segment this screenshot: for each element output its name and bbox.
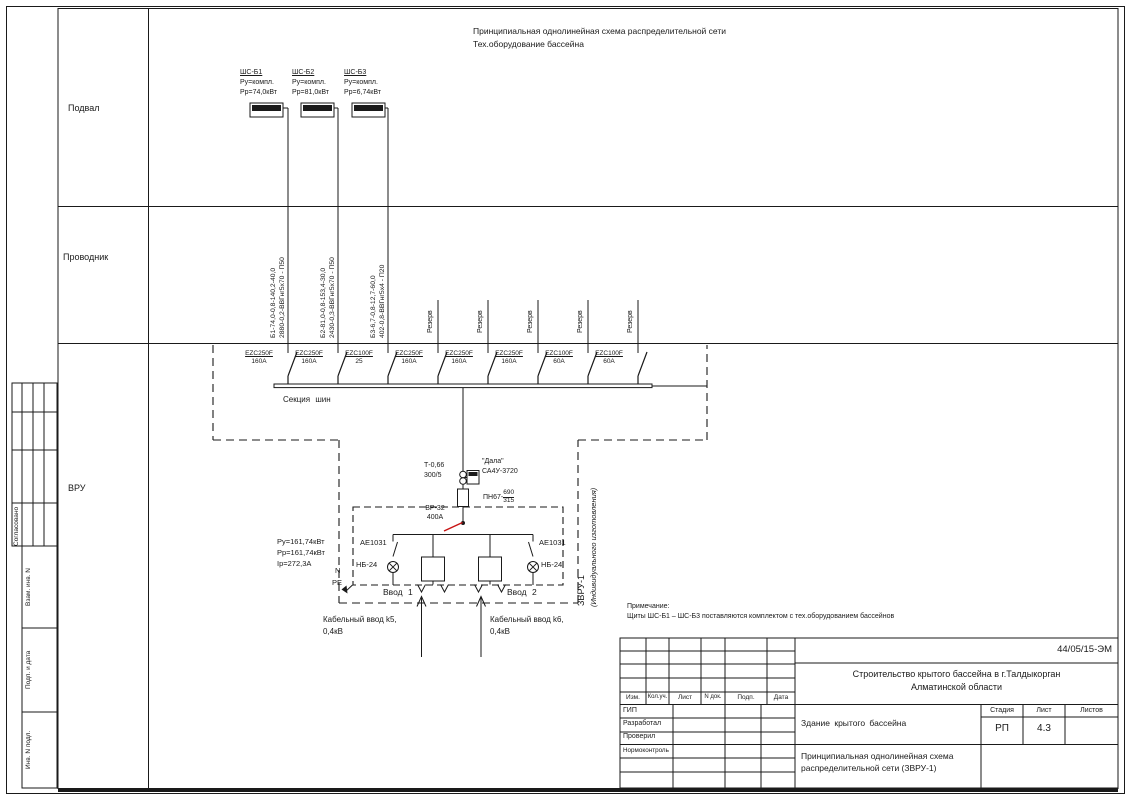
project-name: Строительство крытого бассейна в г.Талды… xyxy=(795,668,1118,694)
cable-label-3a: Б3-6,7-0,8-12,7-60,0 xyxy=(370,220,377,338)
stage-header: Стадия xyxy=(981,707,1023,715)
stage-value: РП xyxy=(981,723,1023,735)
breaker-rating: 160A xyxy=(451,358,466,365)
breaker-rating: 160A xyxy=(401,358,416,365)
breaker-model: EZC250F xyxy=(395,350,423,357)
doc-title-line1: Принципиальная однолинейная схема xyxy=(801,751,953,761)
cable-entry2-voltage: 0,4кВ xyxy=(490,627,510,636)
breaker-model: EZC250F xyxy=(495,350,523,357)
breaker-model: EZC100F xyxy=(595,350,623,357)
n-label: N xyxy=(335,567,340,576)
cable-entry1-label: Кабельный ввод k5, 0,4кВ xyxy=(323,614,397,637)
main-switch-blade xyxy=(444,523,463,532)
switch-rating: 400А xyxy=(427,514,443,521)
doc-title-line2: распределительной сети (ЗВРУ-1) xyxy=(801,763,936,773)
power-ip: Iр=272,3А xyxy=(277,559,311,568)
meter-brand: "Дала" xyxy=(482,458,504,465)
ct-box-input2 xyxy=(479,557,502,581)
cable-label-1a: Б1-74,0-0,8-140,2-40,0 xyxy=(270,220,277,338)
breaker-label-3: EZC100F25 xyxy=(335,350,383,366)
switch-type: ВР-32 xyxy=(425,505,444,512)
region-label-basement: Подвал xyxy=(68,103,99,113)
panel-pp: Рр=6,74кВт xyxy=(344,89,381,96)
ae-breaker-left xyxy=(393,535,398,557)
power-summary: Ру=161,74кВт Рр=161,74кВт Iр=272,3А xyxy=(277,536,325,569)
note-title: Примечание: xyxy=(627,603,669,611)
breaker-model: EZC250F xyxy=(295,350,323,357)
reserve-label: Резерв xyxy=(627,299,634,333)
col-data: Дата xyxy=(767,694,795,701)
role-gip: ГИП xyxy=(623,707,637,715)
drawing-title-line1: Принципиальная однолинейная схема распре… xyxy=(473,27,726,37)
ct-type: Т-0,66 xyxy=(424,462,444,469)
breaker-rating: 160A xyxy=(251,358,266,365)
drawing-sheet: Принципиальная однолинейная схема распре… xyxy=(0,0,1131,800)
ct-box-input1 xyxy=(422,557,445,581)
side-podp-label: Подп. и дата xyxy=(25,628,32,712)
breaker-rating: 25 xyxy=(355,358,362,365)
bus-bar xyxy=(274,384,707,388)
panel-name: ШС-Б2 xyxy=(292,69,314,76)
input1-label: Ввод 1 xyxy=(383,588,413,598)
sheet-header: Лист xyxy=(1023,707,1065,715)
role-developed: Разработал xyxy=(623,720,661,728)
main-switch-label: ВР-32 400А xyxy=(415,505,455,522)
panel-pp: Рр=74,0кВт xyxy=(240,89,277,96)
breaker-label-2: EZC250F160A xyxy=(285,350,333,366)
sheet-value: 4.3 xyxy=(1023,723,1065,735)
meter-model: СА4У-3720 xyxy=(482,468,518,475)
fuse-den: 315 xyxy=(503,498,514,505)
cable-entry-arrow-2 xyxy=(477,597,486,658)
cable-entry1-text: Кабельный ввод k5, xyxy=(323,615,397,624)
project-name-line1: Строительство крытого бассейна в г.Талды… xyxy=(853,669,1061,679)
feeder-wires xyxy=(288,108,638,353)
reserve-label: Резерв xyxy=(577,299,584,333)
breaker-label-4: EZC250F160A xyxy=(385,350,433,366)
drawing-title-line2: Тех.оборудование бассейна xyxy=(473,40,584,50)
panel-pu: Ру=компл. xyxy=(292,79,326,86)
breaker-label-5: EZC250F160A xyxy=(435,350,483,366)
sheets-header: Листов xyxy=(1065,707,1118,715)
bus-section-label: Секция шин xyxy=(283,395,331,404)
cable-label-3b: 402-0,8-ВВГнг5х4 - П20 xyxy=(379,220,386,338)
power-pu: Ру=161,74кВт xyxy=(277,537,325,546)
ct-label: Т-0,66 300/5 xyxy=(424,461,444,480)
col-izm: Изм. xyxy=(620,694,646,701)
cable-entry2-label: Кабельный ввод k6, 0,4кВ xyxy=(490,614,564,637)
pe-label: PE xyxy=(332,579,342,588)
ct-ratio: 300/5 xyxy=(424,472,442,479)
col-list: Лист xyxy=(669,694,701,701)
power-pp: Рр=161,74кВт xyxy=(277,548,325,557)
lamp-label-right: НБ-24 xyxy=(541,561,562,570)
breaker-label-7: EZC100F60A xyxy=(535,350,583,366)
cable-entry-arrow-1 xyxy=(417,597,426,658)
panel-pu: Ру=компл. xyxy=(240,79,274,86)
region-label-vru: ВРУ xyxy=(68,483,86,493)
lamp-label-left: НБ-24 xyxy=(356,561,377,570)
side-vzam-label: Взам. инв. N xyxy=(25,546,32,628)
breaker-label-8: EZC100F60A xyxy=(585,350,633,366)
enclosure-label: ЗВРУ-1 xyxy=(576,562,586,606)
cable-label-2b: 2430-0,3-ВВГнг5х70 - П50 xyxy=(329,220,336,338)
panel-label-3: ШС-Б3 Ру=компл. Рр=6,74кВт xyxy=(344,68,381,98)
fuse-label: ПН67-690315 xyxy=(483,490,514,504)
side-stamp-grid xyxy=(12,383,57,788)
breaker-model: EZC250F xyxy=(245,350,273,357)
enclosure-sub-label: (Индивидуального изготовления) xyxy=(589,455,598,607)
reserve-label: Резерв xyxy=(527,299,534,333)
cable-label-1b: 2880-0,2-ВВГнг5х70 - П50 xyxy=(279,220,286,338)
breaker-rating: 60A xyxy=(603,358,615,365)
input2-label: Ввод 2 xyxy=(507,588,537,598)
doc-number: 44/05/15-ЭМ xyxy=(900,645,1112,656)
breaker-model: EZC100F xyxy=(545,350,573,357)
panel-label-1: ШС-Б1 Ру=компл. Рр=74,0кВт xyxy=(240,68,277,98)
cable-entry2-text: Кабельный ввод k6, xyxy=(490,615,564,624)
ae-breaker-right xyxy=(529,535,534,557)
panel-name: ШС-Б3 xyxy=(344,69,366,76)
panel-pp: Рр=81,0кВт xyxy=(292,89,329,96)
doc-title: Принципиальная однолинейная схема распре… xyxy=(801,750,953,774)
col-ndok: N док. xyxy=(701,694,725,701)
ae-label-right: АЕ1031 xyxy=(539,539,566,548)
col-podp: Подп. xyxy=(725,694,767,701)
project-name-line2: Алматинской области xyxy=(911,682,1002,692)
reserve-label: Резерв xyxy=(477,299,484,333)
breaker-label-1: EZC250F160A xyxy=(235,350,283,366)
side-inv-label: Инв. N подл. xyxy=(25,712,32,788)
breaker-label-6: EZC250F160A xyxy=(485,350,533,366)
breaker-model: EZC250F xyxy=(445,350,473,357)
object-name: Здание крытого бассейна xyxy=(801,719,906,729)
role-normcontrol: Нормоконтроль xyxy=(623,747,669,754)
cable-entry1-voltage: 0,4кВ xyxy=(323,627,343,636)
panel-pu: Ру=компл. xyxy=(344,79,378,86)
fuse-type: ПН67- xyxy=(483,494,503,501)
reserve-label: Резерв xyxy=(427,299,434,333)
ae-label-left: АЕ1031 xyxy=(360,539,387,548)
panel-name: ШС-Б1 xyxy=(240,69,262,76)
side-approved-label: Согласовано xyxy=(13,500,20,546)
breaker-rating: 60A xyxy=(553,358,565,365)
role-checked: Проверил xyxy=(623,733,655,741)
breaker-rating: 160A xyxy=(501,358,516,365)
panel-label-2: ШС-Б2 Ру=компл. Рр=81,0кВт xyxy=(292,68,329,98)
fuse-symbol xyxy=(458,489,469,507)
distribution-panels xyxy=(250,103,388,117)
region-label-conductor: Проводник xyxy=(63,252,108,262)
ground-symbol xyxy=(342,586,348,594)
breaker-model: EZC100F xyxy=(345,350,373,357)
meter-label: "Дала" СА4У-3720 xyxy=(482,457,518,476)
cable-label-2a: Б2-81,0-0,8-153,4-30,0 xyxy=(320,220,327,338)
breaker-rating: 160A xyxy=(301,358,316,365)
col-koluch: Кол.уч. xyxy=(646,694,669,701)
note-text: Щиты ШС-Б1 – ШС-Б3 поставляются комплект… xyxy=(627,613,894,621)
